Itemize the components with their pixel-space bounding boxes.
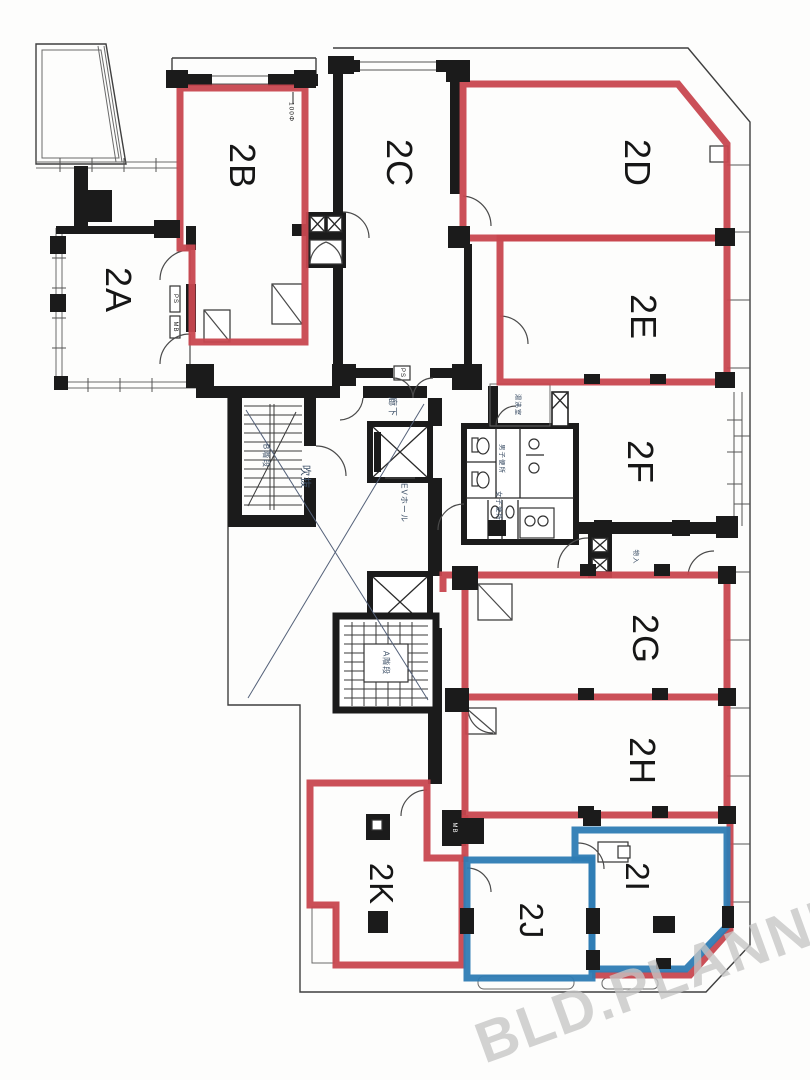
womens-wc-label: 女子便所 xyxy=(495,491,505,521)
storage-label: 物入 xyxy=(632,550,642,565)
room-label-2d: 2D xyxy=(616,139,658,187)
room-label-2g: 2G xyxy=(624,614,666,664)
mens-wc-label: 男子便所 xyxy=(498,444,508,474)
ev-hall-label: EVホール xyxy=(399,483,410,523)
room-label-2h: 2H xyxy=(621,737,663,785)
void-label: 吹抜 xyxy=(298,465,314,489)
mb-label-2: MB xyxy=(451,823,457,834)
room-label-2b: 2B xyxy=(221,143,263,189)
corridor-label: 廊下 xyxy=(387,397,400,417)
room-label-2a: 2A xyxy=(97,267,139,313)
stair-a-label: A階段 xyxy=(381,651,392,675)
red-outline-2d xyxy=(463,84,727,238)
red-outline-2e xyxy=(500,238,727,382)
kitchenette-label: 湯沸室 xyxy=(514,394,524,417)
mb-label-1: MB xyxy=(172,322,178,333)
room-label-2e: 2E xyxy=(622,294,664,340)
room-label-2c: 2C xyxy=(378,139,420,187)
room-label-2f: 2F xyxy=(619,440,661,484)
stair-b-label: B階段 xyxy=(261,444,272,468)
elevator-1 xyxy=(370,424,430,480)
floor-plan: 2A 2B 2C 2D 2E 2F 2G 2H 2I 2J 2K 廊下 吹抜 E… xyxy=(0,0,810,1080)
ps-label-1: PS xyxy=(172,294,178,304)
room-label-2i: 2I xyxy=(618,862,656,892)
room-label-2j: 2J xyxy=(512,903,550,940)
room-label-2k: 2K xyxy=(362,863,400,905)
ps-label-2: PS xyxy=(399,368,405,378)
pipe-label: 100Φ xyxy=(288,102,295,122)
